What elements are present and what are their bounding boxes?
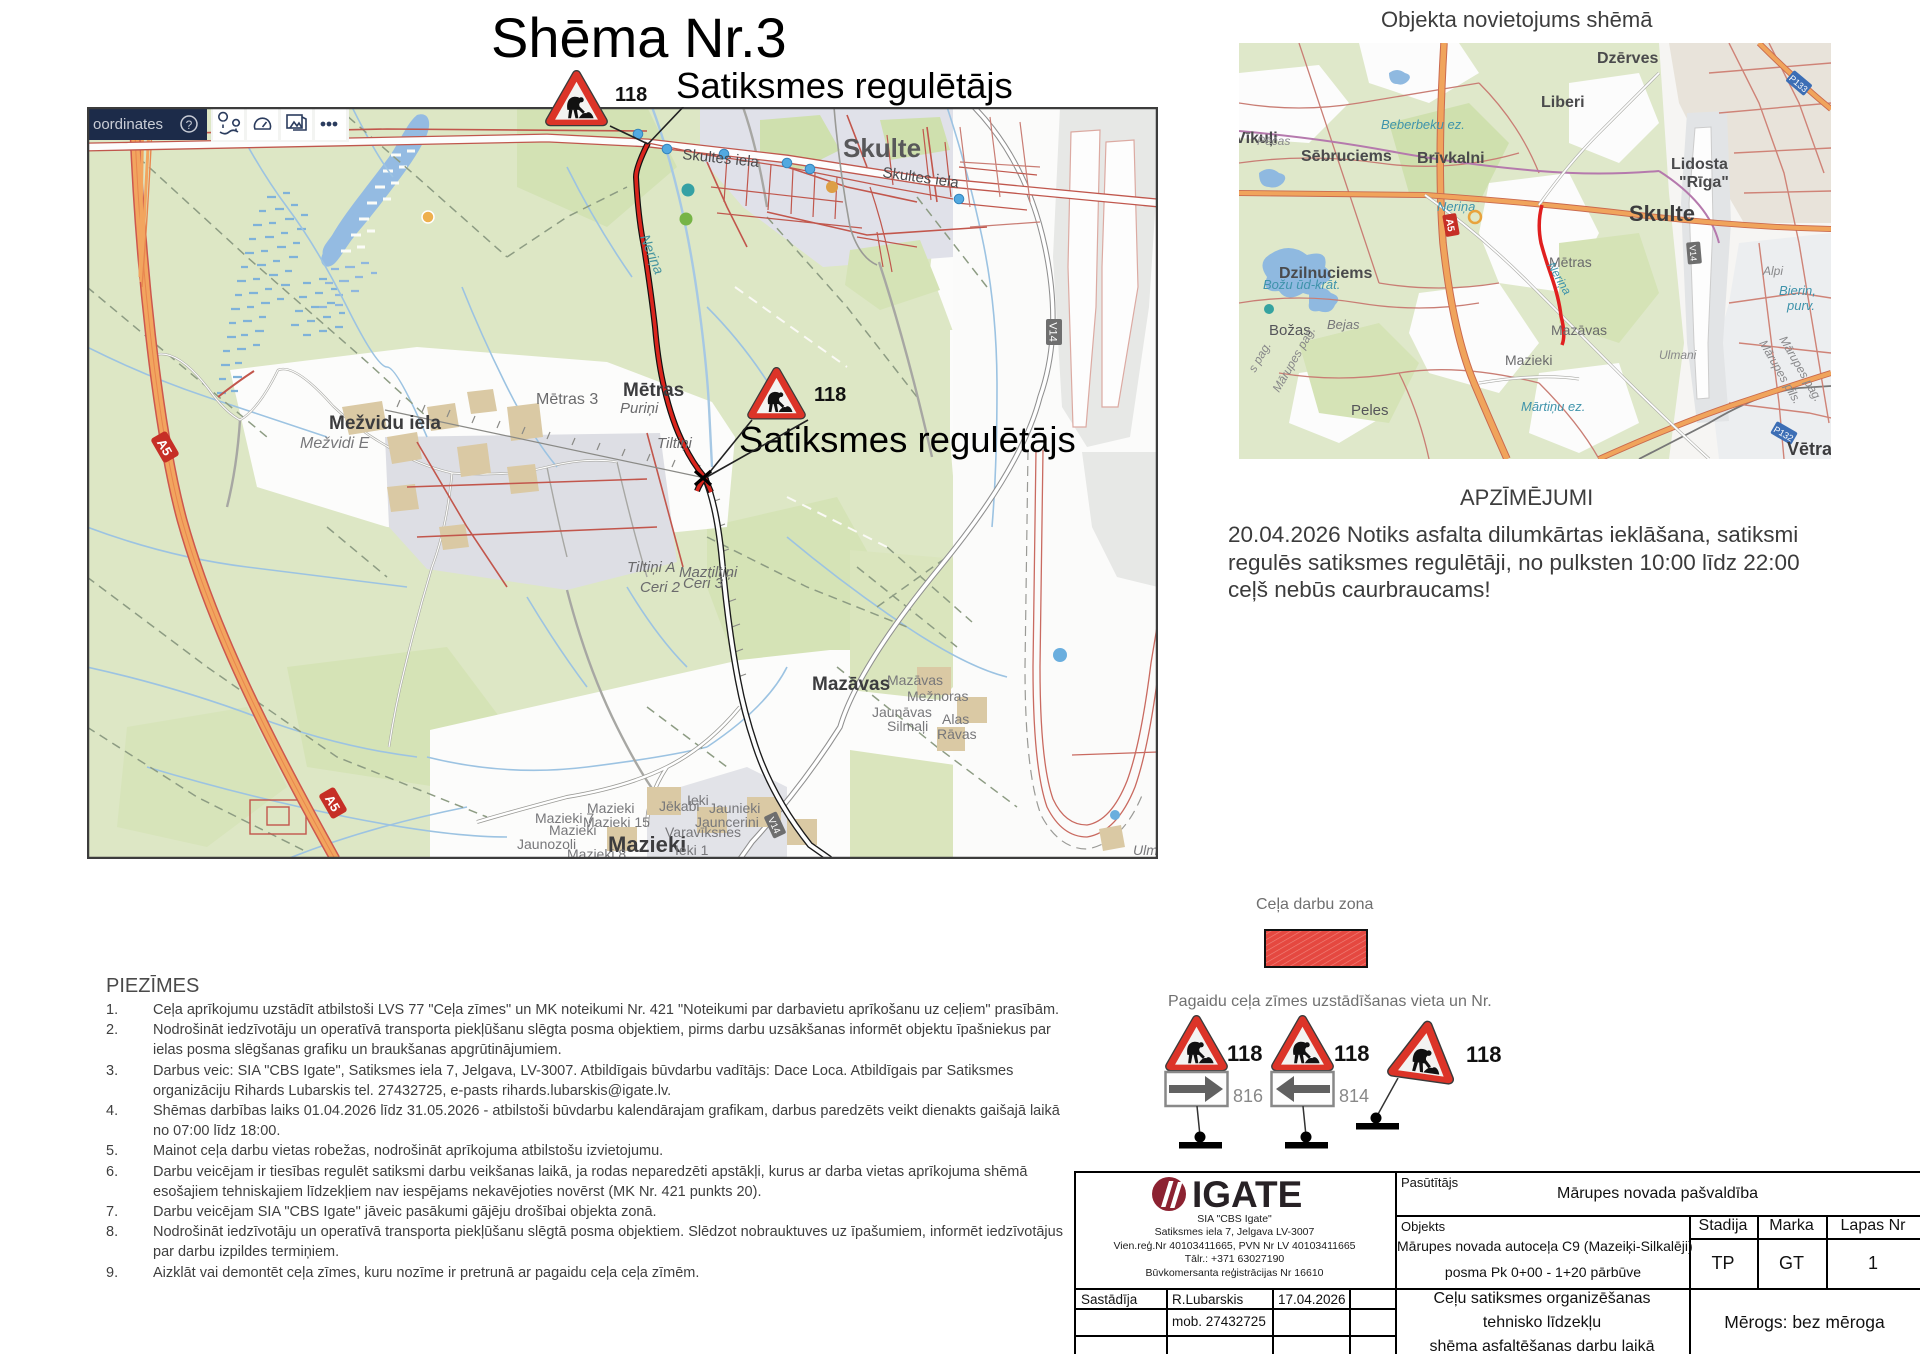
svg-text:Bierin,: Bierin, (1779, 283, 1816, 298)
svg-text:Sēbruciems: Sēbruciems (1301, 148, 1392, 165)
svg-text:Liberi: Liberi (1541, 94, 1585, 111)
svg-text:Mazieki: Mazieki (1505, 352, 1552, 368)
svg-text:"Rīga": "Rīga" (1679, 174, 1729, 191)
svg-text:A5: A5 (1443, 218, 1456, 233)
svg-text:Ulmani: Ulmani (1659, 348, 1697, 362)
svg-text:Bejas: Bejas (1327, 317, 1360, 332)
svg-text:Alpi: Alpi (1762, 264, 1783, 278)
svg-text:Božu ūd-krāt.: Božu ūd-krāt. (1263, 277, 1340, 292)
svg-text:Beberbeku ez.: Beberbeku ez. (1381, 117, 1465, 132)
svg-text:Brīvkalni: Brīvkalni (1417, 150, 1485, 167)
svg-text:IGATE: IGATE (1192, 1175, 1302, 1215)
svg-text:Neriņa: Neriņa (1437, 199, 1475, 214)
svg-text:Skulte: Skulte (1629, 201, 1695, 226)
svg-text:Mazāvas: Mazāvas (1551, 322, 1607, 338)
svg-text:Dzērves: Dzērves (1597, 50, 1658, 67)
svg-text:Lidosta: Lidosta (1671, 156, 1728, 173)
svg-text:Vētra: Vētra (1787, 439, 1831, 459)
svg-text:V14: V14 (1687, 245, 1698, 262)
svg-text:Pēčas: Pēčas (1257, 134, 1290, 148)
svg-text:Mārtiņu ez.: Mārtiņu ez. (1521, 399, 1585, 414)
svg-text:purv.: purv. (1786, 298, 1815, 313)
svg-text:Peles: Peles (1351, 402, 1389, 419)
